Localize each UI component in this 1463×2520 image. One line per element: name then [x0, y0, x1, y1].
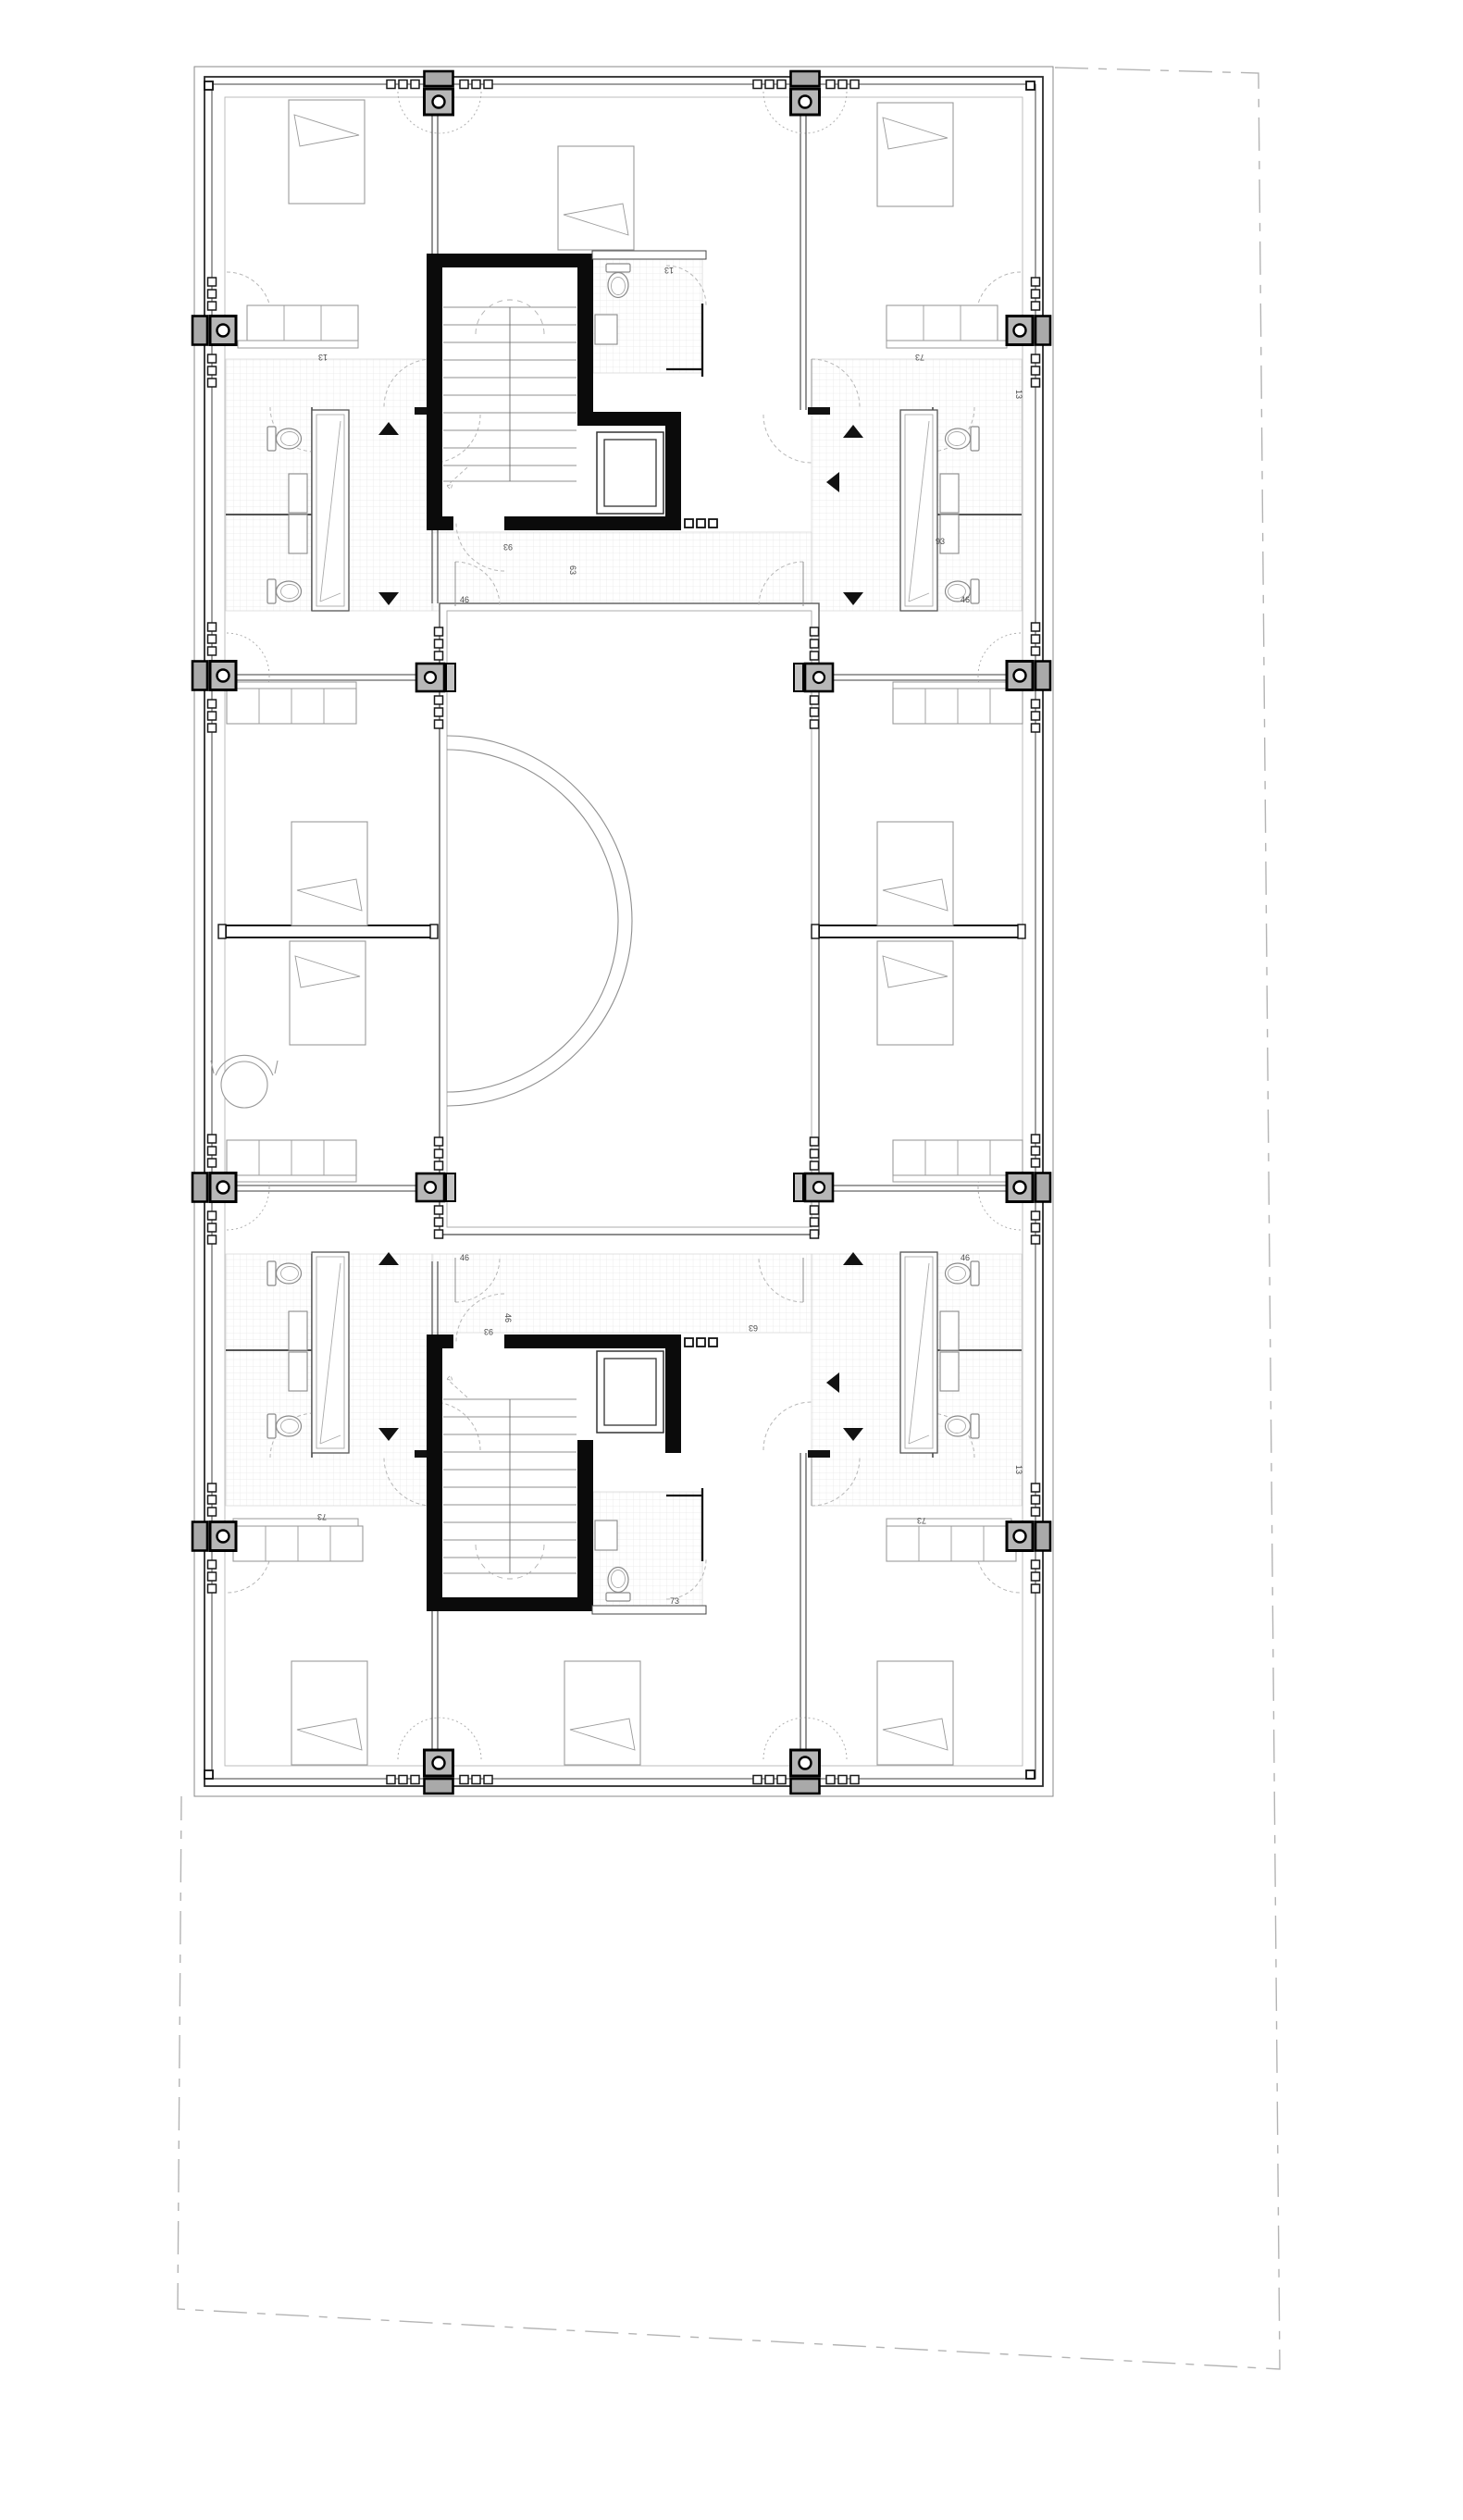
armchair	[211, 1055, 278, 1108]
dimension-label: 46	[460, 595, 469, 604]
toilet-icon	[267, 1261, 302, 1285]
toilet-icon	[946, 427, 980, 451]
column	[425, 1750, 453, 1794]
dimension-label: 63	[568, 565, 577, 575]
toilet-icon	[267, 427, 302, 451]
elevator-top	[597, 432, 663, 514]
column	[1007, 1522, 1050, 1551]
dimension-label: 46	[503, 1313, 513, 1322]
dimension-label: 63	[749, 1323, 758, 1333]
bed	[290, 941, 366, 1045]
bath-counter	[592, 251, 706, 259]
column	[192, 1173, 236, 1202]
column	[1007, 317, 1050, 345]
bed	[289, 100, 365, 204]
door-jambs	[685, 519, 717, 528]
bed	[877, 941, 953, 1045]
dimension-label: 13	[1014, 390, 1023, 399]
toilet-icon	[267, 579, 302, 603]
corner-marker-icon	[205, 1770, 213, 1779]
dimension-label: 13	[1014, 1465, 1023, 1474]
stair-flight	[443, 300, 577, 490]
bed	[564, 1661, 640, 1765]
sink	[595, 1521, 617, 1550]
column	[416, 664, 455, 691]
toilet-icon	[606, 1568, 630, 1602]
column	[791, 1750, 820, 1794]
elevator-bottom	[597, 1351, 663, 1433]
dimension-label: 73	[670, 1596, 679, 1606]
bed	[877, 103, 953, 206]
dimension-label: 46	[961, 1253, 970, 1262]
dimension-label: 93	[936, 537, 945, 546]
column	[791, 71, 820, 115]
dimension-label: 73	[917, 1516, 926, 1525]
toilet-icon	[267, 1414, 302, 1438]
dimension-label: 13	[318, 353, 328, 362]
toilet-icon	[606, 264, 630, 298]
dimension-label: 93	[503, 542, 513, 552]
bed	[291, 822, 367, 925]
column	[192, 662, 236, 690]
toilet-icon	[946, 1261, 980, 1285]
column	[192, 1522, 236, 1551]
floor-plan-sheet: 13 73 13 93 63 93 46 46 46 93 63 46 46 7…	[0, 0, 1463, 2520]
column	[425, 71, 453, 115]
column	[192, 317, 236, 345]
bed	[558, 146, 634, 250]
bed	[877, 822, 953, 925]
column	[794, 664, 833, 691]
dimension-label: 46	[961, 595, 970, 604]
bed	[291, 1661, 367, 1765]
floor-plan-drawing: 13 73 13 93 63 93 46 46 46 93 63 46 46 7…	[0, 0, 1463, 2520]
door-jambs	[685, 1338, 717, 1347]
dimension-label: 93	[484, 1327, 493, 1336]
bath-counter	[592, 1606, 706, 1614]
stair-flight	[443, 1375, 577, 1579]
column	[416, 1173, 455, 1201]
toilet-icon	[946, 1414, 980, 1438]
corner-marker-icon	[1026, 81, 1035, 90]
dimension-label: 46	[460, 1253, 469, 1262]
column	[1007, 662, 1050, 690]
dimension-label: 13	[664, 266, 674, 275]
bed	[877, 1661, 953, 1765]
column	[1007, 1173, 1050, 1202]
dimension-label: 73	[317, 1512, 327, 1521]
atrium	[440, 603, 819, 1235]
corner-marker-icon	[205, 81, 213, 90]
dimension-label: 73	[915, 353, 924, 362]
sink	[595, 315, 617, 344]
corner-marker-icon	[1026, 1770, 1035, 1779]
column	[794, 1173, 833, 1201]
